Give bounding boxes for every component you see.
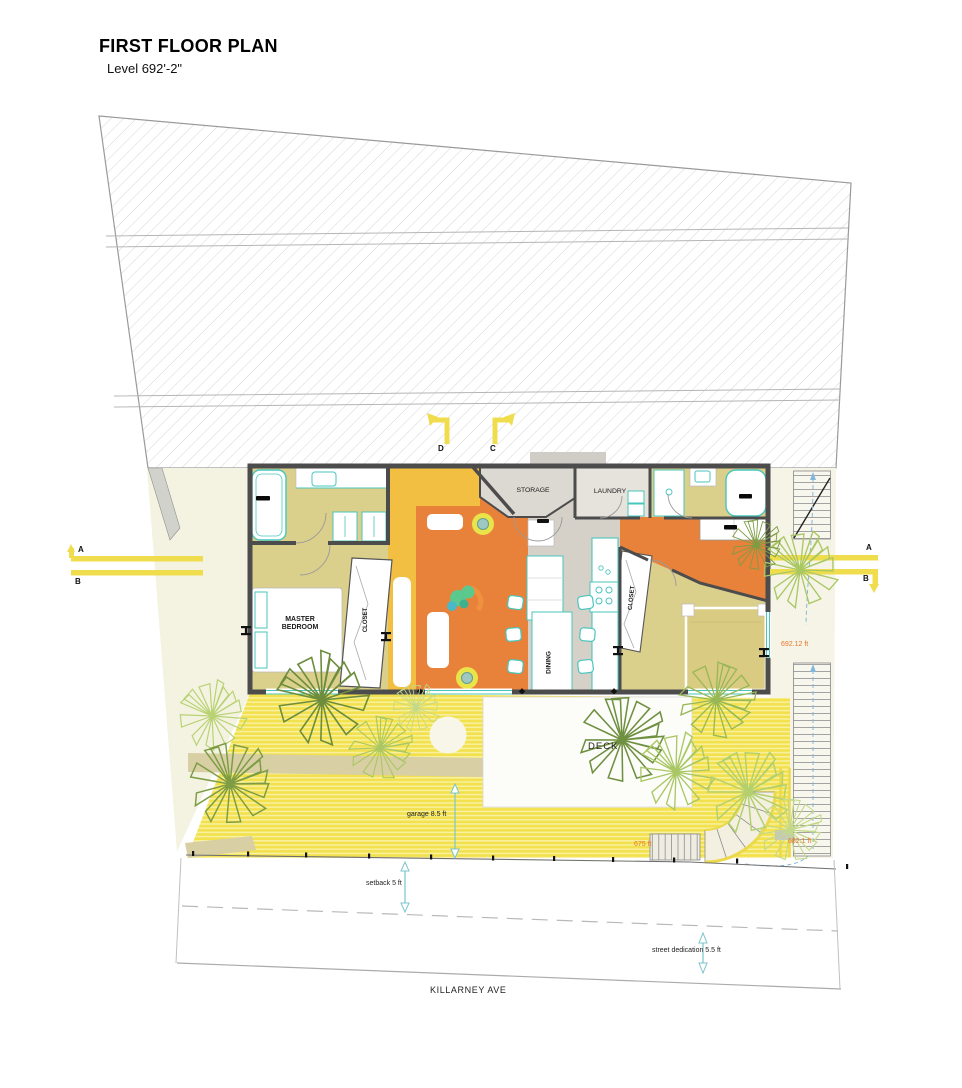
- section-label-a-right: A: [866, 543, 872, 552]
- dim-setback-arrow: [401, 862, 409, 912]
- sink: [312, 472, 336, 486]
- section-label-b-right: B: [863, 574, 869, 583]
- section-label-a-left: A: [78, 545, 84, 554]
- room-label-dining: DINING: [546, 641, 553, 685]
- floor-plan-drawing: [0, 0, 962, 1088]
- sink: [695, 471, 710, 482]
- property-lines: [176, 851, 848, 989]
- elevation-stair-landing: 692.12 ft: [781, 641, 808, 648]
- dim-label-setback: setback 5 ft: [366, 880, 402, 887]
- room-label-master-bedroom: MASTER BEDROOM: [278, 616, 322, 633]
- dim-label-garage: garage 8.5 ft: [407, 811, 446, 818]
- street-dedication-line: [182, 906, 838, 931]
- hatched-rear-area: [99, 116, 851, 469]
- page-subtitle: Level 692'-2": [107, 61, 182, 76]
- floor-plan-canvas: FIRST FLOOR PLAN Level 692'-2" D C A B A…: [0, 0, 962, 1088]
- elevation-stair-bottom: 682.1 ft: [788, 838, 811, 845]
- section-label-c: C: [490, 444, 496, 453]
- dim-label-street-dedication: street dedication 5.5 ft: [652, 947, 721, 954]
- room-label-deck: DECK: [588, 741, 618, 752]
- section-label-d: D: [438, 444, 444, 453]
- fridge: [528, 520, 554, 546]
- page-title: FIRST FLOOR PLAN: [99, 36, 278, 57]
- street-name: KILLARNEY AVE: [430, 985, 507, 995]
- room-label-master-closet: CLOSET: [363, 598, 369, 642]
- section-line-b-left: [71, 570, 203, 576]
- light-fixture: [472, 513, 494, 535]
- room-label-laundry: LAUNDRY: [584, 488, 636, 495]
- section-label-b-left: B: [75, 577, 81, 586]
- bathtub: [252, 470, 286, 540]
- kitchen-counter: [592, 538, 618, 692]
- bathtub: [726, 470, 766, 516]
- tree-well: [430, 717, 467, 754]
- stove: [590, 582, 618, 612]
- rug: [427, 514, 463, 530]
- elevation-deck-edge: 675 ft: [634, 841, 652, 848]
- hall-runner: [393, 577, 411, 687]
- shower: [654, 470, 684, 516]
- room-label-storage: STORAGE: [505, 487, 561, 494]
- kitchen-island: [527, 556, 563, 620]
- rug: [427, 612, 449, 668]
- light-fixture: [456, 667, 478, 689]
